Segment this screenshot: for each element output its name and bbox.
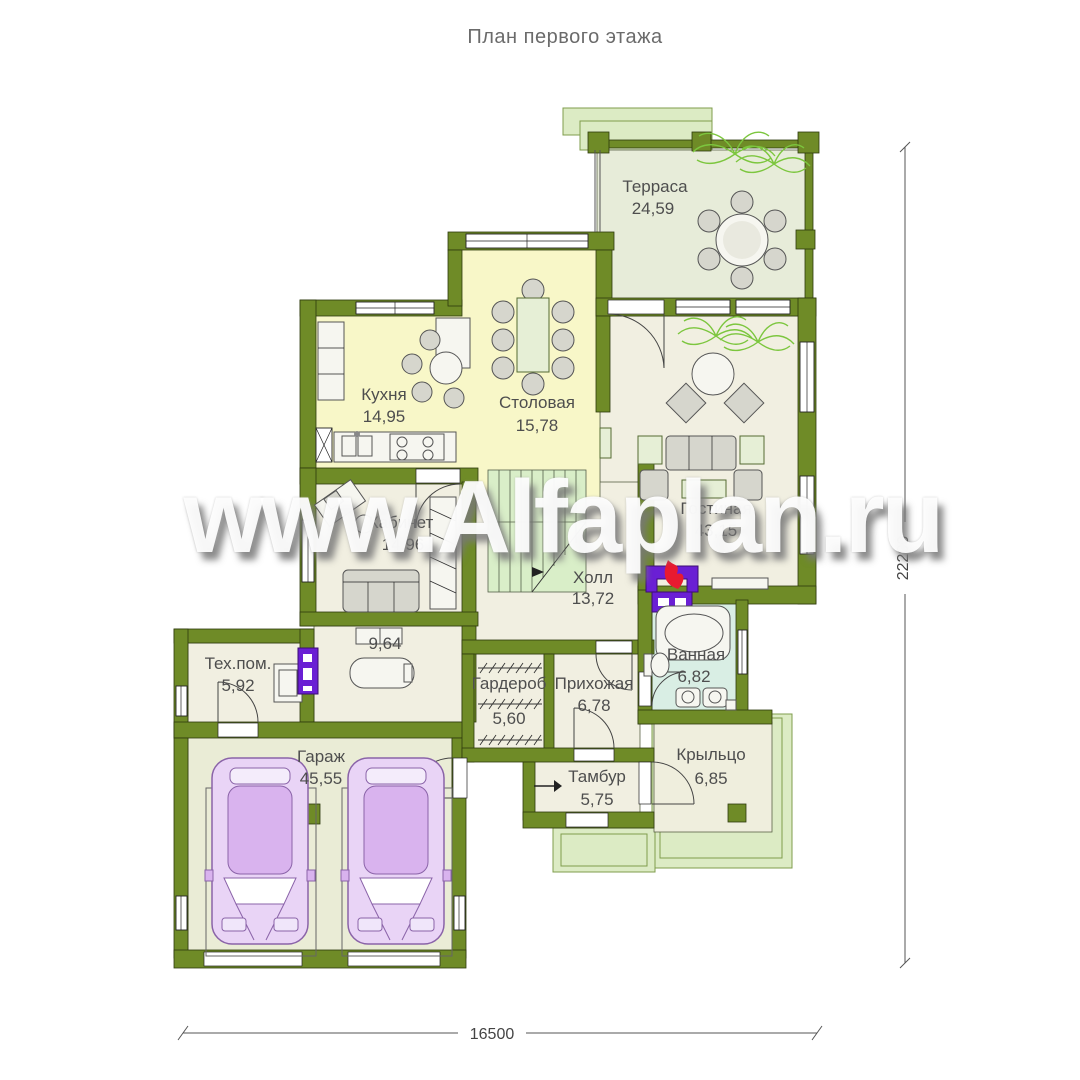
label-terrace: Терраса <box>622 177 688 196</box>
label-living-area: 43,15 <box>695 521 738 540</box>
label-tambour: Тамбур <box>568 767 626 786</box>
label-tech-area: 5,92 <box>221 676 254 695</box>
label-dining-area: 15,78 <box>516 416 559 435</box>
wardrobe-floor <box>470 654 544 752</box>
dimension-bottom: 16500 <box>178 1026 822 1043</box>
dimension-right: 22200 <box>895 142 912 968</box>
label-wardrobe-area: 5,60 <box>492 709 525 728</box>
label-kitchen: Кухня <box>361 385 407 404</box>
label-porch-area: 6,85 <box>694 769 727 788</box>
fireplace <box>646 560 698 612</box>
dimension-height-label: 22200 <box>895 536 912 581</box>
label-hall: Холл <box>573 568 613 587</box>
label-living: Гостиная <box>680 499 751 518</box>
label-sauna-area: 9,64 <box>368 634 401 653</box>
label-garage: Гараж <box>297 747 346 766</box>
label-hall-area: 13,72 <box>572 589 615 608</box>
label-study: Кабинет <box>369 513 434 532</box>
label-porch: Крыльцо <box>676 745 745 764</box>
label-tambour-area: 5,75 <box>580 790 613 809</box>
car <box>341 758 451 944</box>
label-kitchen-area: 14,95 <box>363 407 406 426</box>
label-garage-area: 45,55 <box>300 769 343 788</box>
label-bathroom: Ванная <box>667 645 725 664</box>
label-dining: Столовая <box>499 393 575 412</box>
label-study-area: 14,96 <box>382 535 425 554</box>
floor-plan-drawing: Терраса 24,59 Кухня 14,95 Столовая 15,78… <box>0 0 1080 1080</box>
page-title: План первого этажа <box>25 26 1080 49</box>
dimension-width-label: 16500 <box>470 1026 515 1043</box>
label-bathroom-area: 6,82 <box>677 667 710 686</box>
label-wardrobe: Гардероб <box>472 674 547 693</box>
label-entry-area: 6,78 <box>577 696 610 715</box>
staircase <box>488 470 586 592</box>
label-entry: Прихожая <box>555 674 634 693</box>
floor-plan-page: Терраса 24,59 Кухня 14,95 Столовая 15,78… <box>0 0 1080 1080</box>
label-tech: Тех.пом. <box>205 654 272 673</box>
label-terrace-area: 24,59 <box>632 199 675 218</box>
car <box>205 758 315 944</box>
